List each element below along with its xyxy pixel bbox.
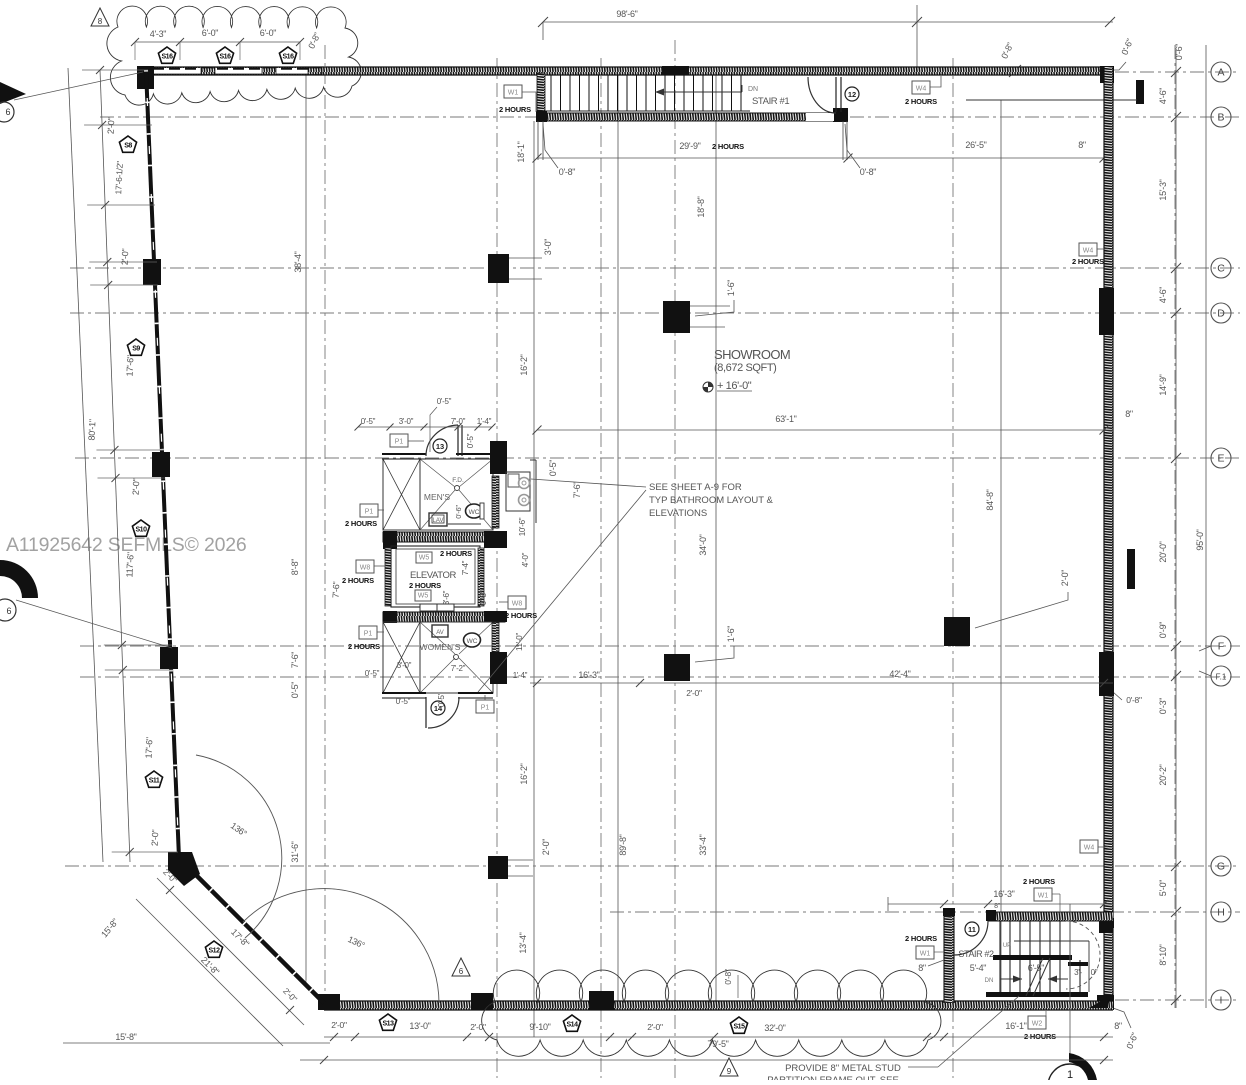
svg-text:2 HOURS: 2 HOURS [348,642,380,651]
svg-text:11: 11 [968,925,976,934]
svg-text:W4: W4 [1083,248,1094,255]
svg-text:89'-8": 89'-8" [618,834,628,855]
svg-text:20'-0": 20'-0" [1158,541,1168,562]
svg-text:4'-6": 4'-6" [1158,287,1168,304]
svg-text:+ 16'-0": + 16'-0" [717,380,752,392]
svg-text:2'-0": 2'-0" [131,478,142,495]
svg-text:ELEVATOR: ELEVATOR [410,570,456,581]
svg-text:14'-9": 14'-9" [1158,374,1168,395]
svg-text:17'-6": 17'-6" [124,355,135,377]
svg-text:7'-6": 7'-6" [331,581,342,598]
svg-text:6: 6 [459,967,464,976]
svg-text:P1: P1 [364,631,373,638]
svg-text:ELEVATIONS: ELEVATIONS [649,508,707,519]
svg-text:7'-6": 7'-6" [572,482,582,499]
svg-text:D: D [1217,308,1225,320]
svg-text:38'-4": 38'-4" [293,251,303,272]
svg-text:8'-8": 8'-8" [290,559,300,576]
svg-text:C: C [1217,263,1225,275]
svg-text:(8,672 SQFT): (8,672 SQFT) [714,362,776,374]
svg-text:8": 8" [918,963,926,973]
svg-text:S16: S16 [162,54,174,61]
svg-text:2'-0": 2'-0" [686,688,702,698]
svg-text:7'-2": 7'-2" [451,664,466,673]
svg-text:2'-0": 2'-0" [120,248,131,265]
svg-text:17'-6": 17'-6" [143,737,154,759]
svg-text:S15: S15 [734,1024,746,1031]
svg-text:5'-0": 5'-0" [1158,880,1168,897]
svg-text:PARTITION FRAME OUT, SEE: PARTITION FRAME OUT, SEE [767,1075,899,1080]
svg-text:W2: W2 [1032,1021,1043,1028]
svg-text:12: 12 [848,90,856,99]
svg-text:WC: WC [467,638,478,645]
svg-text:SHOWROOM: SHOWROOM [714,347,790,362]
svg-text:0'-8": 0'-8" [559,167,576,177]
svg-text:2 HOURS: 2 HOURS [499,105,531,114]
svg-text:3'-: 3'- [1074,968,1082,977]
svg-text:2 HOURS: 2 HOURS [1023,877,1055,886]
svg-text:9'-10": 9'-10" [529,1022,550,1032]
svg-text:WOMEN'S: WOMEN'S [420,642,461,652]
svg-text:9: 9 [727,1067,732,1076]
svg-text:16'-3": 16'-3" [993,889,1014,899]
svg-text:1'-4": 1'-4" [477,417,492,426]
svg-text:0": 0" [1091,968,1098,977]
svg-text:MEN'S: MEN'S [424,492,451,502]
svg-text:W1: W1 [508,90,519,97]
svg-text:2'-0": 2'-0" [541,839,551,856]
svg-text:UP: UP [1003,943,1011,949]
svg-text:1'-6": 1'-6" [726,280,736,297]
svg-text:18'-1": 18'-1" [516,141,526,162]
svg-text:0'-8": 0'-8" [1126,695,1142,705]
svg-text:20'-2": 20'-2" [1158,764,1168,785]
svg-text:2'-0": 2'-0" [106,117,117,134]
svg-text:6'-0": 6'-0" [260,28,277,38]
svg-text:2 HOURS: 2 HOURS [505,611,537,620]
svg-text:0'-5": 0'-5" [548,460,558,477]
svg-text:15'-3": 15'-3" [1158,179,1168,200]
svg-text:7'-0": 7'-0" [451,417,466,426]
svg-text:W1: W1 [1038,893,1049,900]
svg-text:3'-0": 3'-0" [397,661,412,670]
svg-text:2 HOURS: 2 HOURS [409,581,441,590]
svg-text:0'-5": 0'-5" [290,682,300,699]
svg-text:6: 6 [6,606,11,616]
svg-text:26'-5": 26'-5" [965,140,986,150]
svg-text:0'-9": 0'-9" [1158,622,1168,639]
svg-text:2 HOURS: 2 HOURS [1072,257,1104,266]
svg-text:LAV: LAV [433,518,444,524]
svg-text:0'-5": 0'-5" [437,397,452,406]
svg-text:F: F [1218,641,1224,653]
svg-text:S10: S10 [136,527,148,534]
svg-text:WC: WC [469,509,480,516]
svg-text:3'-0": 3'-0" [399,417,414,426]
svg-text:2'-0": 2'-0" [470,1022,486,1032]
svg-text:1: 1 [1067,1069,1073,1080]
svg-text:5'-4": 5'-4" [970,963,987,973]
svg-text:0'-5": 0'-5" [437,692,446,707]
svg-text:W5: W5 [419,555,430,562]
svg-text:S11: S11 [149,778,160,785]
svg-text:3'-0": 3'-0" [543,239,553,256]
svg-text:0'-5": 0'-5" [361,417,376,426]
svg-text:31'-6": 31'-6" [290,841,300,862]
svg-text:S13: S13 [383,1021,395,1028]
svg-text:SEE SHEET A-9 FOR: SEE SHEET A-9 FOR [649,482,742,493]
svg-text:8": 8" [1125,409,1133,419]
svg-text:34'-0": 34'-0" [698,534,708,555]
svg-text:29'-9": 29'-9" [679,141,700,151]
svg-text:STAIR #2: STAIR #2 [958,949,994,959]
svg-text:2'-0": 2'-0" [150,829,161,846]
svg-text:4'-3": 4'-3" [150,29,167,39]
svg-text:3'-6": 3'-6" [442,590,451,605]
svg-text:33'-4": 33'-4" [698,834,708,855]
svg-text:E: E [1217,453,1224,465]
svg-text:4'-0": 4'-0" [521,552,530,567]
svg-text:B: B [1217,112,1224,124]
svg-text:0'-5": 0'-5" [396,697,411,706]
svg-text:S16: S16 [220,54,232,61]
svg-text:8": 8" [1078,140,1086,150]
svg-text:W4: W4 [916,86,927,93]
svg-text:84'-8": 84'-8" [985,489,995,510]
svg-text:1'-4": 1'-4" [513,671,528,680]
svg-text:F.D.: F.D. [452,477,464,484]
svg-text:2'-0": 2'-0" [1060,570,1070,587]
svg-text:P1: P1 [365,509,374,516]
svg-text:A: A [1217,67,1224,79]
svg-text:117'-6": 117'-6" [124,552,135,578]
svg-text:2 HOURS: 2 HOURS [345,519,377,528]
svg-text:79'-5": 79'-5" [707,1039,728,1049]
svg-text:I: I [1220,995,1223,1007]
svg-text:0'-8": 0'-8" [479,590,488,605]
svg-text:13: 13 [436,442,444,451]
svg-text:P1: P1 [481,705,490,712]
svg-text:2 HOURS: 2 HOURS [905,97,937,106]
svg-text:S9: S9 [132,346,140,353]
svg-text:8": 8" [1114,1021,1122,1031]
svg-text:8: 8 [98,17,103,26]
svg-text:0'-6": 0'-6" [1174,44,1184,61]
svg-text:80'-1": 80'-1" [86,419,97,441]
svg-text:13'-0": 13'-0" [409,1021,430,1031]
svg-text:63'-1": 63'-1" [775,414,796,424]
svg-text:13'-4": 13'-4" [518,932,528,953]
svg-text:W8: W8 [512,601,523,608]
svg-text:16'-2": 16'-2" [519,763,529,784]
svg-text:S12: S12 [209,948,221,955]
svg-text:TYP BATHROOM LAYOUT &: TYP BATHROOM LAYOUT & [649,495,774,506]
svg-text:2'-0": 2'-0" [647,1022,663,1032]
svg-text:P1: P1 [395,439,404,446]
svg-text:0'-5": 0'-5" [365,669,380,678]
svg-text:0'-6": 0'-6" [454,505,463,519]
svg-text:W1: W1 [920,951,931,958]
svg-text:W5: W5 [418,593,429,600]
svg-text:S16: S16 [283,54,295,61]
svg-text:15'-8": 15'-8" [115,1032,136,1042]
svg-text:2'-0": 2'-0" [331,1020,347,1030]
svg-text:2 HOURS: 2 HOURS [342,576,374,585]
svg-text:G: G [1217,861,1225,873]
svg-text:8'-10": 8'-10" [1158,944,1168,965]
svg-text:2 HOURS: 2 HOURS [440,549,472,558]
svg-text:32'-0": 32'-0" [764,1023,785,1033]
svg-text:7'-4": 7'-4" [461,560,470,575]
svg-text:10'-6": 10'-6" [518,517,527,536]
svg-text:16'-3": 16'-3" [578,670,599,680]
svg-text:H: H [1217,907,1225,919]
svg-text:AV: AV [436,630,444,636]
svg-text:18'-8": 18'-8" [696,196,706,217]
svg-text:6'-0": 6'-0" [202,28,219,38]
svg-text:0'-8": 0'-8" [723,969,733,985]
svg-text:17'-6-1/2": 17'-6-1/2" [113,161,125,195]
svg-text:S8: S8 [124,143,132,150]
svg-text:2 HOURS: 2 HOURS [905,934,937,943]
svg-text:1'-6": 1'-6" [726,626,736,643]
svg-text:2 HOURS: 2 HOURS [712,142,744,151]
svg-text:6: 6 [5,107,10,117]
svg-text:7'-6": 7'-6" [290,652,300,669]
svg-text:16'-1": 16'-1" [1005,1021,1026,1031]
svg-text:4'-6": 4'-6" [1158,88,1168,105]
svg-text:W8: W8 [360,565,371,572]
svg-text:DN: DN [985,978,994,984]
svg-text:2 HOURS: 2 HOURS [1024,1032,1056,1041]
svg-text:98'-6": 98'-6" [616,9,637,19]
svg-text:0'-3": 0'-3" [1158,698,1168,715]
svg-text:STAIR #1: STAIR #1 [752,96,789,107]
svg-text:95'-0": 95'-0" [1195,529,1205,550]
svg-text:F.1: F.1 [1216,673,1227,682]
svg-text:PROVIDE 8" METAL STUD: PROVIDE 8" METAL STUD [785,1063,901,1074]
svg-text:6'-5": 6'-5" [1028,963,1045,973]
svg-text:42'-4": 42'-4" [889,669,910,679]
svg-text:DN: DN [748,86,758,93]
svg-text:W4: W4 [1084,845,1095,852]
svg-text:S14: S14 [567,1022,579,1029]
svg-text:0'-8": 0'-8" [860,167,877,177]
svg-text:16'-2": 16'-2" [519,354,529,375]
svg-text:0'-5": 0'-5" [466,433,475,448]
